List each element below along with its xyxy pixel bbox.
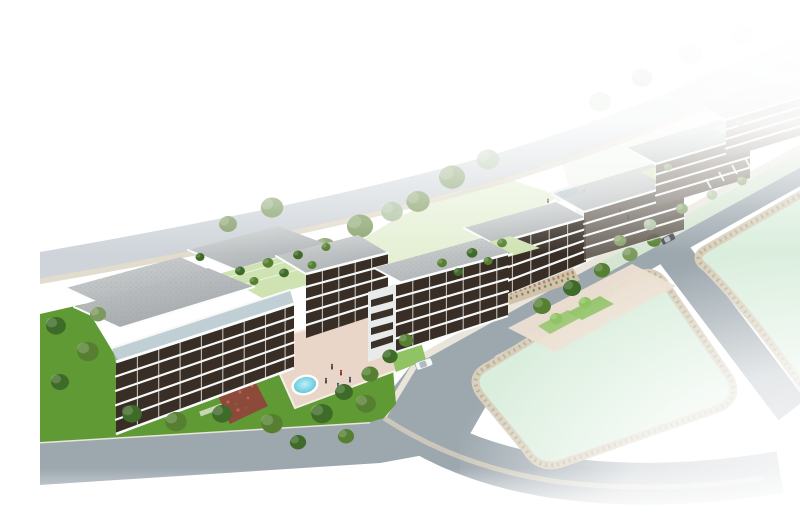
scene-canvas <box>40 16 800 516</box>
architectural-rendering <box>40 16 800 516</box>
